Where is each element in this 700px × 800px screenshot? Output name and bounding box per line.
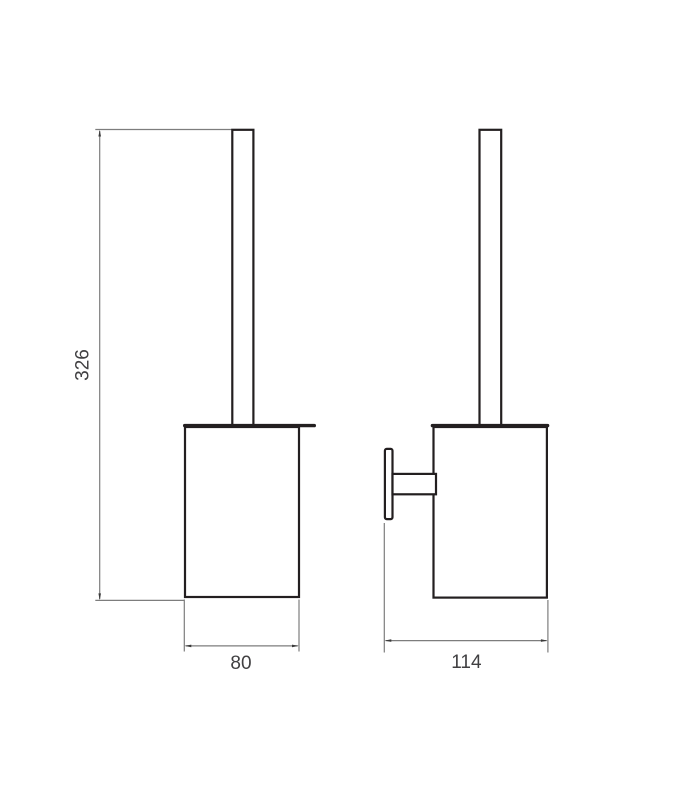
svg-text:114: 114 (451, 652, 482, 673)
svg-text:80: 80 (230, 653, 251, 674)
svg-text:326: 326 (73, 349, 94, 381)
